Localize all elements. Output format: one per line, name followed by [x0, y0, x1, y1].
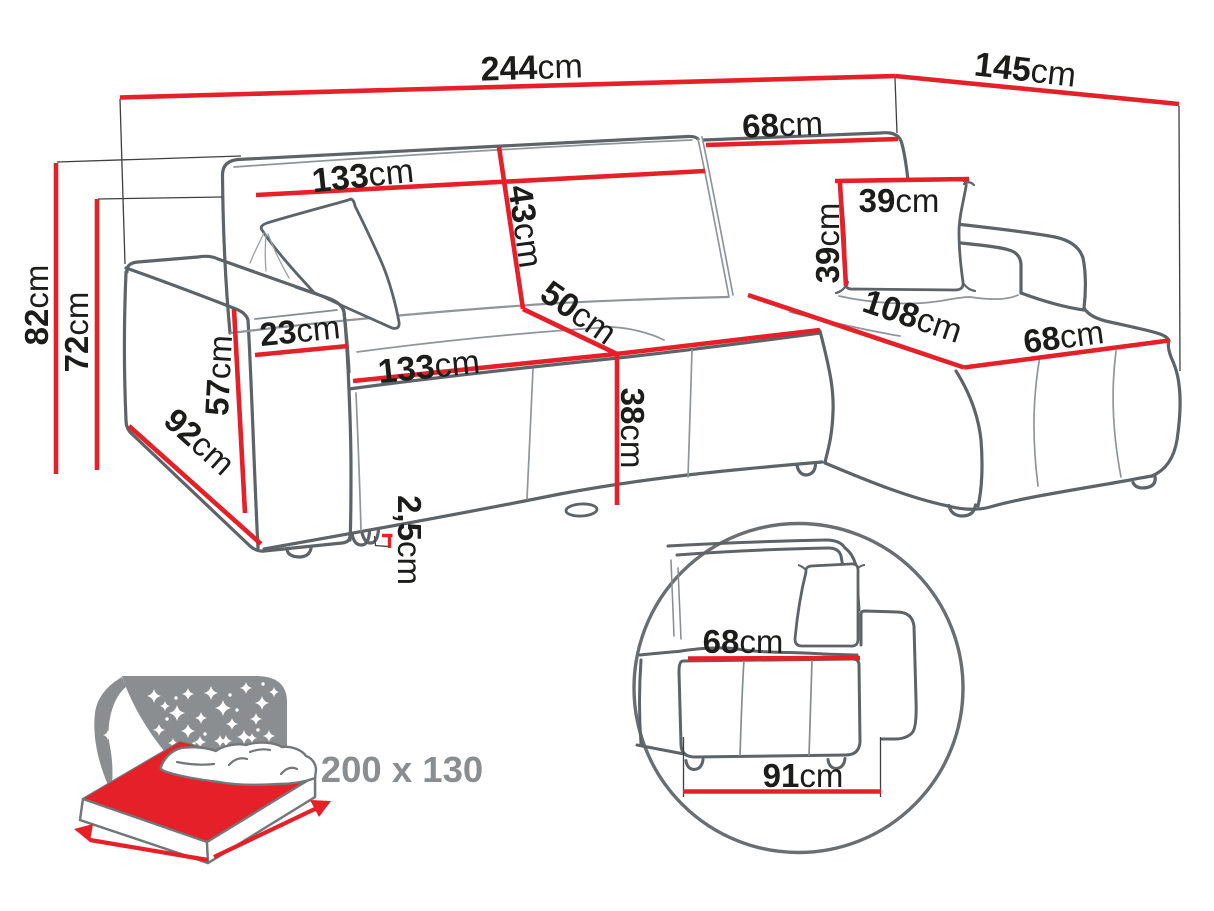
svg-text:57cm: 57cm [198, 334, 239, 417]
svg-text:2,5cm: 2,5cm [391, 495, 428, 585]
svg-text:200 x 130: 200 x 130 [321, 749, 483, 790]
svg-text:91cm: 91cm [763, 757, 844, 794]
svg-text:39cm: 39cm [809, 203, 846, 284]
svg-text:244cm: 244cm [480, 47, 583, 88]
svg-text:72cm: 72cm [58, 292, 95, 373]
svg-text:68cm: 68cm [741, 104, 823, 144]
svg-text:68cm: 68cm [703, 623, 784, 660]
svg-text:39cm: 39cm [859, 182, 940, 219]
svg-text:38cm: 38cm [614, 388, 651, 469]
svg-text:82cm: 82cm [18, 265, 55, 346]
